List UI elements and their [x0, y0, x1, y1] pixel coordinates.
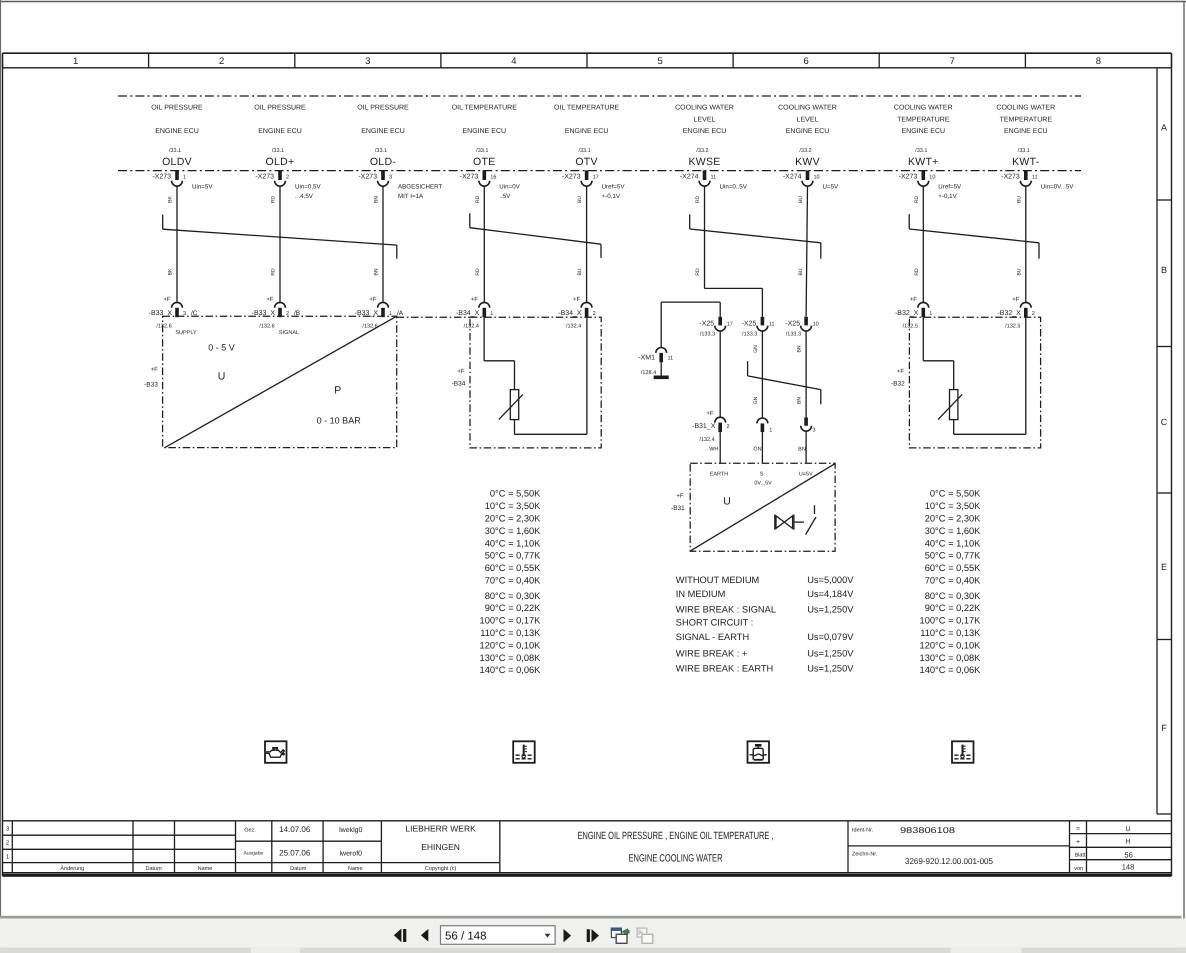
- svg-text:/133.3: /133.3: [786, 332, 801, 338]
- svg-text:4: 4: [511, 56, 516, 67]
- svg-text:90°C = 0,22K: 90°C = 0,22K: [925, 603, 981, 613]
- svg-text:+-0,1V: +-0,1V: [602, 193, 621, 200]
- svg-text:16: 16: [490, 175, 496, 181]
- svg-text:U=5V: U=5V: [823, 184, 840, 191]
- svg-text:3: 3: [812, 428, 815, 434]
- svg-text:P: P: [334, 384, 341, 396]
- svg-text:10: 10: [929, 175, 935, 181]
- svg-text:1: 1: [929, 311, 932, 317]
- svg-text:Uin=0V...5V: Uin=0V...5V: [1041, 184, 1074, 191]
- svg-text:Uref=5V: Uref=5V: [602, 184, 626, 191]
- svg-text:+-0,1V: +-0,1V: [938, 193, 957, 200]
- svg-text:ENGINE ECU: ENGINE ECU: [786, 128, 830, 135]
- svg-text:Us=1,250V: Us=1,250V: [807, 663, 854, 673]
- svg-text:11: 11: [668, 356, 674, 362]
- svg-text:30°C = 1,60K: 30°C = 1,60K: [925, 526, 981, 536]
- svg-text:Uin=0,5V: Uin=0,5V: [295, 184, 321, 191]
- svg-text:140°C = 0,06K: 140°C = 0,06K: [920, 665, 982, 675]
- svg-text:120°C = 0,10K: 120°C = 0,10K: [480, 640, 542, 650]
- svg-text:11: 11: [769, 322, 775, 328]
- svg-text:B: B: [1161, 265, 1167, 275]
- svg-text:ENGINE ECU: ENGINE ECU: [683, 128, 727, 135]
- svg-text:RD: RD: [271, 196, 277, 204]
- svg-text:OIL PRESSURE: OIL PRESSURE: [357, 105, 409, 112]
- svg-text:BN: BN: [374, 268, 380, 275]
- svg-text:Gez.: Gez.: [244, 827, 256, 833]
- svg-text:RD: RD: [271, 268, 277, 276]
- svg-text:H: H: [1125, 839, 1130, 846]
- svg-text:EHINGEN: EHINGEN: [421, 842, 460, 852]
- svg-text:/133.3: /133.3: [742, 332, 757, 338]
- svg-text:=: =: [1076, 826, 1080, 833]
- svg-text:ENGINE ECU: ENGINE ECU: [902, 128, 946, 135]
- svg-text:OTV: OTV: [575, 156, 598, 168]
- svg-text:+F: +F: [573, 296, 581, 303]
- svg-text:ENGINE COOLING WATER: ENGINE COOLING WATER: [629, 853, 723, 865]
- svg-text:+F: +F: [471, 296, 479, 303]
- svg-text:50°C = 0,77K: 50°C = 0,77K: [485, 551, 541, 561]
- svg-text:Ausgabe: Ausgabe: [244, 851, 264, 857]
- svg-text:SUPPLY: SUPPLY: [175, 330, 197, 336]
- svg-text:+: +: [1076, 839, 1080, 846]
- svg-text:ENGINE ECU: ENGINE ECU: [258, 128, 302, 135]
- svg-text:70°C = 0,40K: 70°C = 0,40K: [485, 576, 541, 586]
- svg-text:11: 11: [711, 175, 717, 181]
- svg-text:Uin=0V: Uin=0V: [499, 184, 520, 191]
- svg-text:30°C = 1,60K: 30°C = 1,60K: [485, 526, 541, 536]
- svg-text:MIT I=1A: MIT I=1A: [398, 193, 424, 200]
- svg-text:Uref=5V: Uref=5V: [938, 184, 962, 191]
- svg-text:Blatt: Blatt: [1074, 853, 1085, 859]
- svg-text:/33.1: /33.1: [476, 148, 488, 154]
- svg-text:50°C = 0,77K: 50°C = 0,77K: [925, 551, 981, 561]
- svg-text:OTE: OTE: [473, 156, 496, 168]
- svg-text:-B32_X: -B32_X: [997, 310, 1021, 317]
- svg-text:110°C = 0,13K: 110°C = 0,13K: [920, 628, 981, 638]
- svg-text:+F: +F: [706, 410, 714, 417]
- svg-text:BN: BN: [797, 345, 803, 352]
- svg-text:C: C: [1161, 417, 1168, 427]
- svg-text:/33.1: /33.1: [578, 148, 590, 154]
- svg-text:RD: RD: [914, 196, 920, 204]
- svg-text:-X274: -X274: [680, 174, 699, 181]
- svg-text:WIRE BREAK : EARTH: WIRE BREAK : EARTH: [676, 663, 773, 673]
- svg-text:5: 5: [657, 56, 662, 67]
- svg-text:OIL TEMPERATURE: OIL TEMPERATURE: [554, 105, 620, 112]
- svg-text:+F: +F: [910, 296, 918, 303]
- svg-text:Us=5,000V: Us=5,000V: [807, 575, 854, 585]
- svg-text:+F: +F: [897, 368, 905, 375]
- svg-text:WITHOUT MEDIUM: WITHOUT MEDIUM: [676, 575, 760, 585]
- svg-text:11: 11: [1032, 175, 1038, 181]
- svg-text:WIRE BREAK : SIGNAL: WIRE BREAK : SIGNAL: [676, 605, 776, 615]
- svg-text:/128.4: /128.4: [641, 370, 656, 376]
- svg-text:OIL PRESSURE: OIL PRESSURE: [151, 105, 203, 112]
- svg-text:0V...5V: 0V...5V: [754, 480, 772, 486]
- svg-text:RD: RD: [695, 268, 701, 276]
- svg-text:OLD-: OLD-: [370, 156, 396, 168]
- svg-text:BU: BU: [577, 196, 583, 203]
- svg-text:BN: BN: [797, 397, 803, 404]
- svg-text:OLD+: OLD+: [266, 156, 295, 168]
- svg-text:KWT-: KWT-: [1012, 156, 1040, 168]
- svg-text:-B32: -B32: [891, 380, 905, 387]
- svg-text:lweklg0: lweklg0: [339, 826, 362, 834]
- svg-text:2: 2: [219, 56, 224, 67]
- svg-text:-X25: -X25: [742, 321, 757, 328]
- svg-text:/33.1: /33.1: [272, 148, 284, 154]
- svg-text:80°C = 0,30K: 80°C = 0,30K: [925, 591, 981, 601]
- svg-text:+F: +F: [266, 296, 274, 303]
- svg-text:-B34_X: -B34_X: [558, 310, 582, 317]
- svg-text:/33.1: /33.1: [375, 148, 387, 154]
- svg-text:-X273: -X273: [899, 174, 918, 181]
- svg-text:-X25: -X25: [699, 321, 714, 328]
- svg-text:+F: +F: [151, 366, 159, 373]
- svg-text:1: 1: [769, 428, 772, 434]
- svg-text:-X273: -X273: [152, 174, 171, 181]
- svg-text:17: 17: [727, 322, 733, 328]
- svg-text:Zeichn-Nr.: Zeichn-Nr.: [852, 852, 878, 858]
- svg-text:90°C = 0,22K: 90°C = 0,22K: [485, 603, 541, 613]
- svg-text:-X25: -X25: [785, 321, 800, 328]
- svg-text:/132.6: /132.6: [156, 324, 171, 330]
- svg-text:BU: BU: [798, 196, 804, 203]
- svg-text:100°C = 0,17K: 100°C = 0,17K: [480, 616, 542, 626]
- svg-text:+F: +F: [163, 296, 171, 303]
- svg-text:/33.2: /33.2: [799, 148, 811, 154]
- svg-text:0°C = 5,50K: 0°C = 5,50K: [930, 489, 981, 499]
- svg-text:COOLING WATER: COOLING WATER: [675, 105, 734, 112]
- svg-text:60°C = 0,55K: 60°C = 0,55K: [485, 563, 541, 573]
- svg-text:/132.4: /132.4: [464, 324, 479, 330]
- svg-text:ENGINE ECU: ENGINE ECU: [361, 128, 405, 135]
- svg-text:100°C = 0,17K: 100°C = 0,17K: [920, 616, 982, 626]
- svg-text:3269-920.12.00.001-005: 3269-920.12.00.001-005: [905, 856, 993, 866]
- svg-text:BK: BK: [168, 268, 174, 275]
- svg-text:+F: +F: [457, 368, 465, 375]
- svg-text:KWSE: KWSE: [688, 156, 720, 168]
- svg-text:BN: BN: [798, 447, 806, 453]
- svg-text:ABGESICHERT: ABGESICHERT: [398, 184, 442, 191]
- svg-text:110°C = 0,13K: 110°C = 0,13K: [480, 628, 541, 638]
- svg-text:OIL TEMPERATURE: OIL TEMPERATURE: [452, 105, 518, 112]
- svg-text:Us=1,250V: Us=1,250V: [807, 605, 854, 615]
- svg-text:+F: +F: [676, 492, 684, 499]
- svg-text:25.07.06: 25.07.06: [279, 848, 311, 857]
- svg-text:/132.4: /132.4: [566, 324, 581, 330]
- svg-text:1: 1: [183, 175, 186, 181]
- svg-text:..5V: ..5V: [499, 193, 511, 200]
- svg-text:/132.5: /132.5: [903, 324, 918, 330]
- svg-text:Copyright (c): Copyright (c): [425, 866, 457, 872]
- svg-text:GN: GN: [753, 447, 761, 453]
- svg-text:GN: GN: [753, 345, 759, 353]
- svg-text:RD: RD: [914, 268, 920, 276]
- svg-text:U=5V: U=5V: [799, 471, 813, 477]
- svg-text:SIGNAL - EARTH: SIGNAL - EARTH: [676, 632, 749, 642]
- svg-text:17: 17: [593, 175, 599, 181]
- svg-text:0°C = 5,50K: 0°C = 5,50K: [490, 489, 541, 499]
- svg-text:120°C = 0,10K: 120°C = 0,10K: [920, 640, 982, 650]
- svg-text:20°C = 2,30K: 20°C = 2,30K: [925, 514, 981, 524]
- svg-text:2: 2: [727, 424, 730, 430]
- svg-text:140°C = 0,06K: 140°C = 0,06K: [480, 665, 542, 675]
- svg-text:Ident-Nr.: Ident-Nr.: [852, 828, 874, 834]
- svg-text:1: 1: [490, 311, 493, 317]
- svg-text:von: von: [1074, 866, 1083, 872]
- svg-text:-X273: -X273: [358, 174, 377, 181]
- svg-text:KWT+: KWT+: [908, 156, 939, 168]
- svg-text:RD: RD: [475, 268, 481, 276]
- svg-text:RD: RD: [475, 196, 481, 204]
- svg-text:10: 10: [814, 175, 820, 181]
- svg-text:BU: BU: [1016, 196, 1022, 203]
- svg-text:BU: BU: [798, 268, 804, 275]
- svg-text:-XM1: -XM1: [638, 355, 655, 362]
- svg-text:OLDV: OLDV: [162, 156, 192, 168]
- svg-text:14.07.06: 14.07.06: [279, 825, 311, 834]
- svg-text:0 - 5 V: 0 - 5 V: [208, 343, 235, 353]
- svg-text:Name: Name: [198, 866, 213, 872]
- svg-text:6: 6: [804, 56, 809, 67]
- svg-text:3: 3: [365, 56, 370, 67]
- svg-text:OIL PRESSURE: OIL PRESSURE: [254, 105, 306, 112]
- svg-text:40°C = 1,10K: 40°C = 1,10K: [925, 538, 981, 548]
- svg-text:S: S: [760, 471, 764, 477]
- svg-text:8: 8: [1096, 56, 1101, 67]
- svg-text:KWV: KWV: [795, 156, 820, 168]
- svg-text:2: 2: [593, 311, 596, 317]
- svg-text:ENGINE ECU: ENGINE ECU: [463, 128, 507, 135]
- svg-text:LIEBHERR WERK: LIEBHERR WERK: [405, 823, 476, 833]
- svg-text:LEVEL: LEVEL: [694, 117, 716, 124]
- svg-text:2: 2: [1032, 311, 1035, 317]
- svg-text:ENGINE ECU: ENGINE ECU: [1004, 128, 1048, 135]
- svg-text:Us=0,079V: Us=0,079V: [807, 632, 854, 642]
- svg-text:COOLING WATER: COOLING WATER: [778, 105, 837, 112]
- svg-text:-X274: -X274: [783, 174, 802, 181]
- svg-text:F: F: [1161, 723, 1167, 733]
- svg-text:ENGINE ECU: ENGINE ECU: [155, 128, 199, 135]
- svg-text:-X273: -X273: [255, 174, 274, 181]
- svg-text:GN: GN: [753, 396, 759, 404]
- svg-text:U: U: [218, 371, 226, 383]
- svg-text:-X273: -X273: [562, 174, 581, 181]
- svg-text:3: 3: [389, 175, 392, 181]
- svg-text:TEMPERATURE: TEMPERATURE: [897, 117, 950, 124]
- svg-text:BU: BU: [1016, 268, 1022, 275]
- svg-text:80°C = 0,30K: 80°C = 0,30K: [485, 591, 541, 601]
- svg-text:130°C = 0,08K: 130°C = 0,08K: [480, 653, 542, 663]
- svg-text:Us=1,250V: Us=1,250V: [807, 649, 854, 659]
- svg-text:COOLING WATER: COOLING WATER: [996, 105, 1055, 112]
- svg-text:Us=4,184V: Us=4,184V: [807, 589, 854, 599]
- svg-text:56: 56: [1124, 850, 1132, 859]
- svg-text:/33.2: /33.2: [696, 148, 708, 154]
- svg-text:-X273: -X273: [460, 174, 479, 181]
- svg-text:/132.4: /132.4: [699, 437, 714, 443]
- svg-text:Uin=0..5V: Uin=0..5V: [720, 184, 748, 191]
- svg-text:EARTH: EARTH: [710, 471, 729, 477]
- svg-text:Datum: Datum: [145, 866, 162, 872]
- svg-text:IN MEDIUM: IN MEDIUM: [676, 589, 726, 599]
- svg-text:-B31_X: -B31_X: [692, 423, 716, 430]
- svg-text:/132.6: /132.6: [259, 324, 274, 330]
- svg-text:56 / 148: 56 / 148: [445, 930, 487, 942]
- svg-text:RD: RD: [695, 196, 701, 204]
- svg-text:BN: BN: [374, 196, 380, 203]
- svg-text:+F: +F: [1012, 296, 1020, 303]
- svg-text:TEMPERATURE: TEMPERATURE: [1000, 117, 1053, 124]
- svg-text:BU: BU: [577, 268, 583, 275]
- svg-text:/A: /A: [397, 310, 404, 317]
- svg-text:A: A: [1161, 123, 1167, 133]
- svg-text:70°C = 0,40K: 70°C = 0,40K: [925, 576, 981, 586]
- svg-text:/132.5: /132.5: [1005, 324, 1020, 330]
- svg-text:-B34_X: -B34_X: [456, 310, 480, 317]
- svg-text:/33.1: /33.1: [915, 148, 927, 154]
- svg-text:Änderung: Änderung: [60, 865, 84, 872]
- svg-text:SHORT CIRCUIT :: SHORT CIRCUIT :: [676, 618, 754, 628]
- svg-text:+F: +F: [369, 296, 377, 303]
- svg-text:-B33: -B33: [144, 381, 158, 388]
- svg-text:10°C = 3,50K: 10°C = 3,50K: [925, 501, 981, 511]
- svg-text:/133.3: /133.3: [700, 332, 715, 338]
- svg-text:COOLING WATER: COOLING WATER: [894, 105, 953, 112]
- svg-text:-B34: -B34: [452, 380, 466, 387]
- svg-text:-B31: -B31: [671, 505, 685, 512]
- svg-text:...4,5V: ...4,5V: [295, 193, 314, 200]
- svg-text:983806108: 983806108: [900, 825, 955, 835]
- svg-text:1: 1: [73, 56, 78, 67]
- svg-text:Uin=5V: Uin=5V: [192, 184, 213, 191]
- svg-text:U: U: [1125, 826, 1130, 833]
- svg-text:0 - 10 BAR: 0 - 10 BAR: [317, 416, 362, 426]
- svg-text:Name: Name: [348, 866, 363, 872]
- svg-text:10°C = 3,50K: 10°C = 3,50K: [485, 501, 541, 511]
- svg-text:148: 148: [1122, 863, 1135, 872]
- svg-text:ENGINE OIL PRESSURE , ENGINE O: ENGINE OIL PRESSURE , ENGINE OIL TEMPERA…: [578, 830, 774, 842]
- svg-text:-X273: -X273: [1001, 174, 1020, 181]
- svg-text:U: U: [723, 496, 731, 508]
- svg-text:Datum: Datum: [290, 866, 307, 872]
- svg-text:2: 2: [286, 175, 289, 181]
- svg-text:130°C = 0,08K: 130°C = 0,08K: [920, 653, 982, 663]
- svg-text:10: 10: [813, 322, 819, 328]
- svg-text:/33.1: /33.1: [169, 148, 181, 154]
- svg-text:SIGNAL: SIGNAL: [279, 330, 299, 336]
- svg-text:60°C = 0,55K: 60°C = 0,55K: [925, 563, 981, 573]
- svg-text:lwerof0: lwerof0: [340, 849, 363, 857]
- svg-text:/33.1: /33.1: [1018, 148, 1030, 154]
- svg-text:40°C = 1,10K: 40°C = 1,10K: [485, 538, 541, 548]
- svg-text:WIRE BREAK : +: WIRE BREAK : +: [676, 649, 748, 659]
- svg-text:BK: BK: [168, 196, 174, 203]
- svg-text:7: 7: [950, 56, 955, 67]
- svg-text:LEVEL: LEVEL: [797, 117, 819, 124]
- svg-text:ENGINE ECU: ENGINE ECU: [565, 128, 609, 135]
- svg-text:WH: WH: [709, 447, 718, 453]
- svg-text:20°C = 2,30K: 20°C = 2,30K: [485, 514, 541, 524]
- svg-text:E: E: [1161, 562, 1167, 572]
- svg-text:-B32_X: -B32_X: [895, 310, 919, 317]
